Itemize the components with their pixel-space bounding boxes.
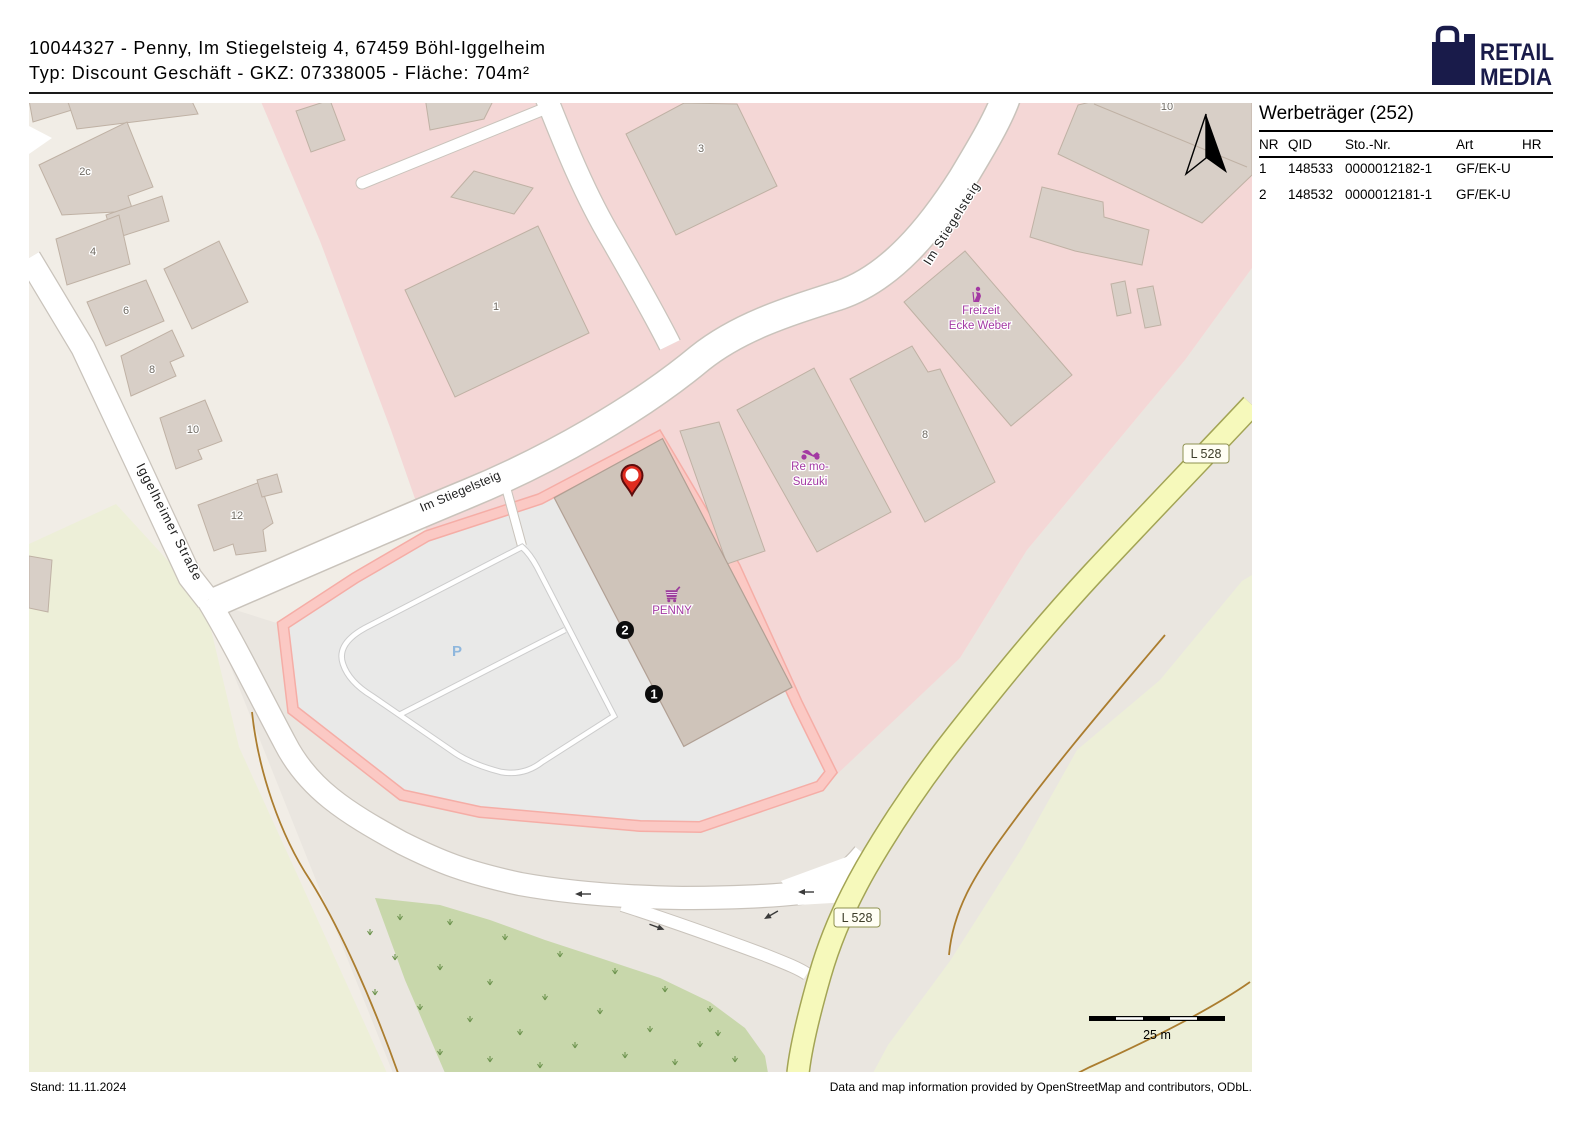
- svg-text:2c: 2c: [79, 166, 91, 178]
- svg-text:RETAIL: RETAIL: [1480, 39, 1554, 66]
- svg-text:Suzuki: Suzuki: [793, 476, 828, 488]
- svg-text:P: P: [452, 643, 462, 660]
- svg-text:1: 1: [650, 687, 657, 702]
- svg-text:8: 8: [922, 429, 928, 441]
- svg-text:6: 6: [123, 305, 129, 317]
- svg-text:L 528: L 528: [1191, 447, 1222, 461]
- svg-text:25 m: 25 m: [1143, 1028, 1171, 1042]
- svg-text:Re mo-: Re mo-: [791, 461, 829, 473]
- svg-text:Freizeit: Freizeit: [962, 305, 1001, 317]
- svg-text:4: 4: [90, 246, 96, 258]
- svg-text:10: 10: [1161, 103, 1173, 113]
- svg-text:Ecke Weber: Ecke Weber: [949, 320, 1012, 332]
- svg-text:2: 2: [621, 623, 628, 638]
- svg-text:3: 3: [698, 143, 704, 155]
- svg-text:1: 1: [493, 301, 499, 313]
- svg-text:10: 10: [187, 424, 199, 436]
- svg-text:12: 12: [231, 510, 243, 522]
- svg-text:MEDIA: MEDIA: [1480, 64, 1552, 91]
- svg-text:L 528: L 528: [842, 911, 873, 925]
- svg-text:8: 8: [149, 364, 155, 376]
- svg-text:PENNY: PENNY: [652, 605, 692, 617]
